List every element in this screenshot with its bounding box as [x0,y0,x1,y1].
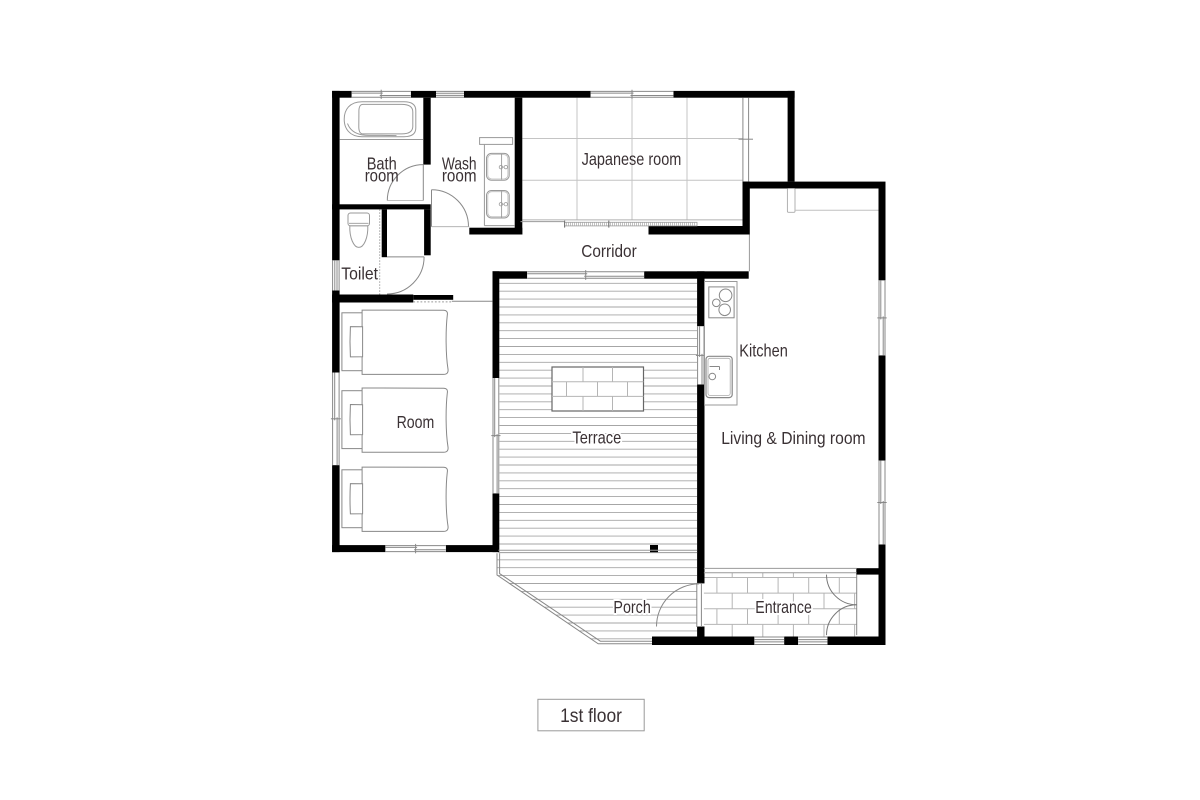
svg-text:Entrance: Entrance [755,597,812,617]
svg-text:Porch: Porch [613,597,650,617]
svg-text:room: room [365,165,399,185]
svg-text:room: room [442,165,477,185]
svg-text:1st floor: 1st floor [560,706,622,727]
svg-text:Room: Room [397,412,435,432]
svg-text:Kitchen: Kitchen [739,341,788,361]
svg-text:Toilet: Toilet [341,264,378,284]
svg-text:Japanese room: Japanese room [582,149,682,169]
svg-text:Corridor: Corridor [581,241,637,261]
svg-text:Terrace: Terrace [572,427,621,447]
svg-text:Living & Dining room: Living & Dining room [721,428,865,448]
